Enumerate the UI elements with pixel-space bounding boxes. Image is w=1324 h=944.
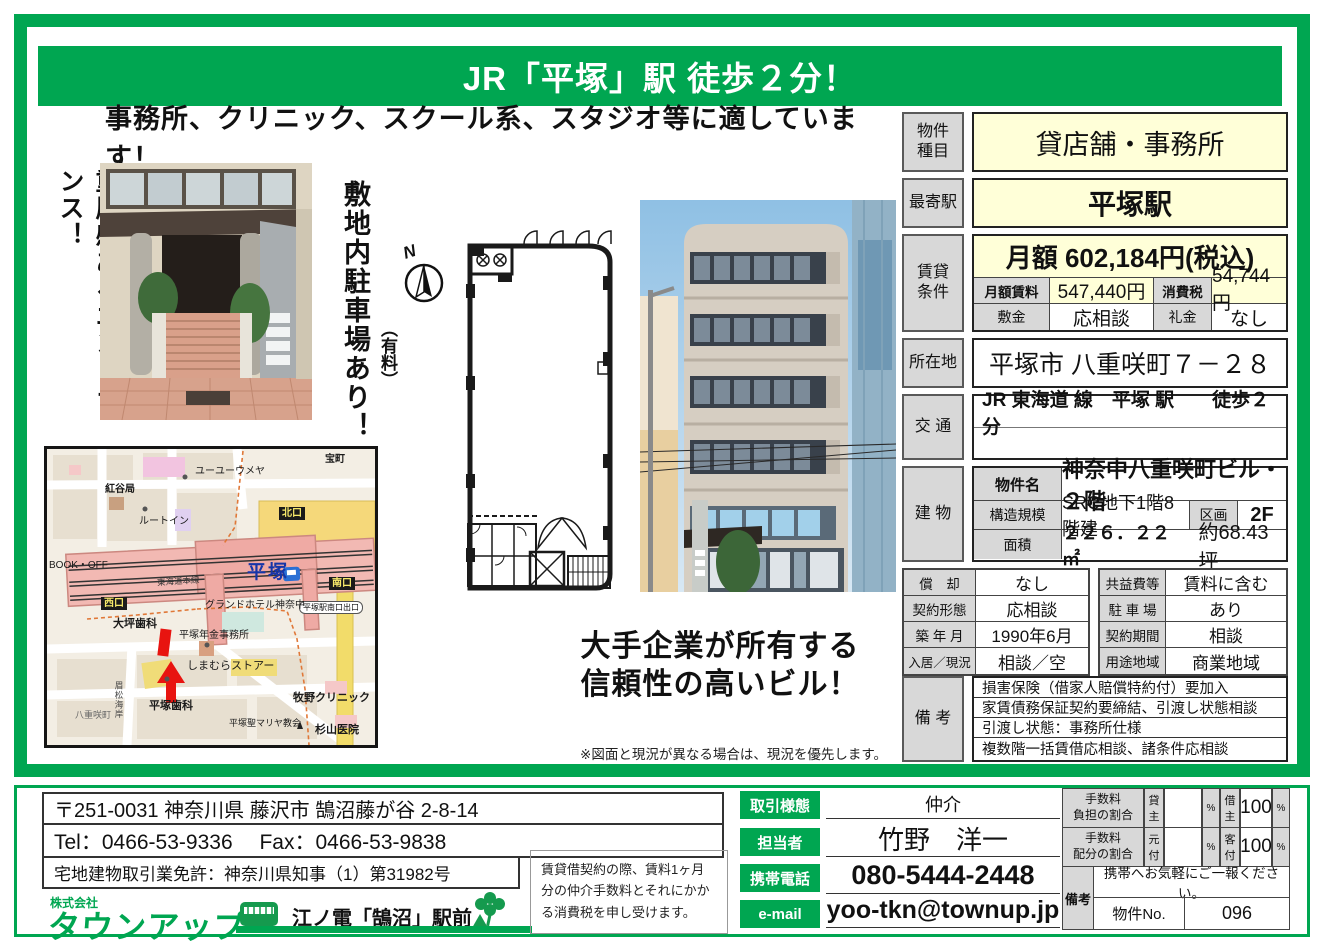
fee-tenant-value: 100 bbox=[1240, 788, 1272, 828]
detail-value: 1990年6月 bbox=[976, 622, 1088, 647]
logo-underline bbox=[236, 926, 532, 933]
area-row: 面積 ２２６．２２㎡ 約68.43坪 bbox=[974, 530, 1286, 559]
map-label-beniya: 紅谷局 bbox=[105, 485, 135, 495]
remark-line: 家賃債務保証契約要締結、引渡し状態相談 bbox=[974, 698, 1286, 718]
svg-text:N: N bbox=[401, 241, 419, 263]
parking-caption-note: （有料） bbox=[375, 320, 400, 470]
brokerage-fee-note: 賃貸借契約の際、賃料1ヶ月分の仲介手数料とそれにかかる消費税を申し受けます。 bbox=[530, 850, 728, 934]
detail-row: 共益費等 賃料に含む bbox=[1100, 570, 1286, 596]
value-tax: 54,744円 bbox=[1212, 278, 1286, 303]
page-title: JR「平塚」駅 徒歩２分！ bbox=[463, 52, 857, 100]
property-no-value: 096 bbox=[1184, 897, 1290, 930]
access-box: JR 東海道 線 平塚 駅 徒歩２分 bbox=[972, 394, 1288, 460]
value-property-type: 貸店舗・事務所 bbox=[972, 112, 1288, 172]
label-mobile: 携帯電話 bbox=[740, 864, 820, 892]
appeal-line2: 信頼性の高いビル！ bbox=[500, 666, 940, 704]
footer-remarks-right: 携帯へお気軽にご一報ください。 物件No. 096 bbox=[1094, 866, 1290, 930]
detail-value: なし bbox=[976, 570, 1088, 595]
fee-motozuke-label: 元付 bbox=[1144, 827, 1164, 867]
label-building-name: 物件名 bbox=[974, 468, 1062, 500]
map-label-youyou: ユーユーウメヤ bbox=[195, 467, 265, 477]
deposit-row: 敷金 応相談 礼金 なし bbox=[974, 304, 1286, 330]
map-label-yaesaki: 八重咲町 bbox=[75, 711, 111, 720]
label-deposit: 敷金 bbox=[974, 304, 1050, 330]
disclaimer-note: ※図面と現況が異なる場合は、現況を優先します。 bbox=[505, 743, 887, 763]
label-remarks: 備 考 bbox=[902, 676, 964, 762]
fee-kyakuzuke-label: 客付 bbox=[1220, 827, 1240, 867]
detail-row: 用途地域 商業地域 bbox=[1100, 648, 1286, 674]
company-address: 〒251-0031 神奈川県 藤沢市 鵠沼藤が谷 2-8-14 bbox=[42, 792, 724, 825]
detail-label: 共益費等 bbox=[1100, 570, 1166, 595]
value-nearest-station: 平塚駅 bbox=[972, 178, 1288, 228]
header-subtitle: 事務所、クリニック、スクール系、スタジオ等に適しています！ bbox=[105, 116, 905, 156]
map-label-station: 平塚 bbox=[247, 557, 289, 584]
value-address: 平塚市 八重咲町７－２８ bbox=[972, 338, 1288, 388]
entrance-photo bbox=[100, 163, 312, 420]
detail-row: 駐 車 場 あり bbox=[1100, 596, 1286, 622]
rent-conditions-box: 月額 602,184円(税込) 月額賃料 547,440円 消費税 54,744… bbox=[972, 234, 1288, 332]
detail-row: 償 却 なし bbox=[904, 570, 1088, 596]
value-area: ２２６．２２㎡ 約68.43坪 bbox=[1062, 530, 1286, 559]
value-mobile: 080-5444-2448 bbox=[826, 858, 1060, 894]
footer-remarks-text: 携帯へお気軽にご一報ください。 bbox=[1093, 866, 1290, 898]
detail-label: 築 年 月 bbox=[904, 622, 976, 647]
detail-value: 相談 bbox=[1166, 622, 1286, 647]
map-label-routeinn: ルートイン bbox=[139, 517, 189, 527]
parking-caption: 敷地内駐車場あり！ （有料） bbox=[336, 180, 400, 480]
remarks-box: 損害保険（借家人賠償特約付）要加入 家賃債務保証契約要締結、引渡し状態相談 引渡… bbox=[972, 676, 1288, 762]
label-key-money: 礼金 bbox=[1154, 304, 1212, 330]
detail-row: 築 年 月 1990年6月 bbox=[904, 622, 1088, 648]
fee-percent: % bbox=[1272, 827, 1290, 867]
flyer-page: JR「平塚」駅 徒歩２分！ 事務所、クリニック、スクール系、スタジオ等に適してい… bbox=[0, 0, 1324, 944]
details-table-left: 償 却 なし 契約形態 応相談 築 年 月 1990年6月 入居／現況 相談／空 bbox=[902, 568, 1090, 676]
map-label-nenkin: 平塚年金事務所 bbox=[179, 631, 249, 641]
value-email: yoo-tkn@townup.jp bbox=[826, 894, 1060, 928]
label-property-type: 物件 種目 bbox=[902, 112, 964, 172]
label-deal-type: 取引様態 bbox=[740, 791, 820, 819]
label-agent: 担当者 bbox=[740, 828, 820, 856]
map-label-hiratsuka-dental: 平塚歯科 bbox=[149, 701, 193, 712]
label-access: 交 通 bbox=[902, 394, 964, 460]
detail-row: 契約形態 応相談 bbox=[904, 596, 1088, 622]
detail-label: 入居／現況 bbox=[904, 648, 976, 674]
label-area: 面積 bbox=[974, 530, 1062, 559]
detail-value: 商業地域 bbox=[1166, 648, 1286, 674]
map-badge-south-exit: 南口 bbox=[329, 577, 355, 590]
location-map: 宝町 ユーユーウメヤ 紅谷局 ルートイン BOOK・OFF 北口 西口 南口 平… bbox=[44, 446, 378, 748]
fee-landlord-label: 貸主 bbox=[1144, 788, 1164, 828]
map-label-bookoff: BOOK・OFF bbox=[49, 561, 108, 571]
fee-kyakuzuke-value: 100 bbox=[1240, 827, 1272, 867]
map-badge-west-exit: 西口 bbox=[101, 597, 127, 610]
detail-value: あり bbox=[1166, 596, 1286, 621]
value-deal-type: 仲介 bbox=[826, 789, 1060, 819]
map-label-shimamura: しまむらストアー bbox=[187, 661, 274, 672]
fee-burden-label: 手数料 負担の割合 bbox=[1062, 788, 1144, 828]
building-box: 物件名 神奈中八重咲町ビル・２階 構造規模 SRC地下1階8階建 区画 2F 面… bbox=[972, 466, 1288, 562]
detail-value: 相談／空 bbox=[976, 648, 1088, 674]
remark-line: 損害保険（借家人賠償特約付）要加入 bbox=[974, 678, 1286, 698]
footer-remarks-block: 備考 携帯へお気軽にご一報ください。 物件No. 096 bbox=[1062, 866, 1290, 930]
fee-split-label: 手数料 配分の割合 bbox=[1062, 827, 1144, 867]
detail-label: 用途地域 bbox=[1100, 648, 1166, 674]
value-key-money: なし bbox=[1212, 304, 1286, 330]
remark-line: 引渡し状態：事務所仕様 bbox=[974, 718, 1286, 738]
label-rent-conditions: 賃貸 条件 bbox=[902, 234, 964, 332]
fee-table: 手数料 負担の割合 貸主 % 借主 100 % 手数料 配分の割合 元付 % 客… bbox=[1062, 788, 1290, 930]
detail-row: 契約期間 相談 bbox=[1100, 622, 1286, 648]
label-email: e-mail bbox=[740, 900, 820, 928]
value-agent: 竹野 洋一 bbox=[826, 821, 1060, 857]
detail-label: 契約形態 bbox=[904, 596, 976, 621]
value-monthly-rent: 547,440円 bbox=[1050, 278, 1154, 303]
details-table-right: 共益費等 賃料に含む 駐 車 場 あり 契約期間 相談 用途地域 商業地域 bbox=[1098, 568, 1288, 676]
company-license: 宅地建物取引業免許：神奈川県知事（1）第31982号 bbox=[42, 856, 520, 889]
fee-percent: % bbox=[1272, 788, 1290, 828]
appeal-text: 大手企業が所有する 信頼性の高いビル！ bbox=[500, 628, 940, 703]
fee-tenant-label: 借主 bbox=[1220, 788, 1240, 828]
map-label-grand-hotel: グランドホテル神奈中 bbox=[205, 601, 305, 611]
label-structure: 構造規模 bbox=[974, 501, 1062, 529]
detail-value: 賃料に含む bbox=[1166, 570, 1286, 595]
map-sign-south-exit: 平塚駅南口出口 bbox=[299, 601, 363, 614]
value-deposit: 応相談 bbox=[1050, 304, 1154, 330]
property-no-label: 物件No. bbox=[1093, 897, 1185, 930]
building-photo bbox=[640, 200, 896, 592]
value-area-tsubo: 約68.43坪 bbox=[1198, 516, 1286, 574]
detail-label: 償 却 bbox=[904, 570, 976, 595]
fee-motozuke-value bbox=[1164, 827, 1202, 867]
value-access: JR 東海道 線 平塚 駅 徒歩２分 bbox=[974, 396, 1286, 428]
detail-label: 駐 車 場 bbox=[1100, 596, 1166, 621]
fee-percent: % bbox=[1202, 827, 1220, 867]
fee-percent: % bbox=[1202, 788, 1220, 828]
label-monthly-rent: 月額賃料 bbox=[974, 278, 1050, 303]
value-area-m2: ２２６．２２㎡ bbox=[1062, 519, 1184, 571]
fee-split-row: 手数料 配分の割合 元付 % 客付 100 % bbox=[1062, 827, 1290, 867]
map-label-maria: 平塚聖マリヤ教会 bbox=[229, 719, 301, 728]
map-label-takaracho: 宝町 bbox=[325, 455, 345, 465]
detail-label: 契約期間 bbox=[1100, 622, 1166, 647]
map-badge-north-exit: 北口 bbox=[279, 507, 305, 520]
fee-burden-row: 手数料 負担の割合 貸主 % 借主 100 % bbox=[1062, 788, 1290, 828]
parking-caption-main: 敷地内駐車場あり！ bbox=[336, 180, 375, 470]
map-label-otsubo: 大坪歯科 bbox=[113, 619, 157, 630]
remark-line: 複数階一括賃借応相談、諸条件応相談 bbox=[974, 738, 1286, 759]
footer-remarks-label: 備考 bbox=[1062, 866, 1094, 930]
fee-landlord-value bbox=[1164, 788, 1202, 828]
appeal-line1: 大手企業が所有する bbox=[500, 628, 940, 666]
label-address: 所在地 bbox=[902, 338, 964, 388]
map-label-sugiyama: 杉山医院 bbox=[315, 725, 359, 736]
company-logo: タウンアップ bbox=[46, 902, 247, 944]
map-label-coast-road: 眉松海岸 bbox=[113, 681, 125, 719]
property-no-row: 物件No. 096 bbox=[1094, 897, 1290, 930]
rent-row: 月額賃料 547,440円 消費税 54,744円 bbox=[974, 278, 1286, 304]
label-nearest-station: 最寄駅 bbox=[902, 178, 964, 228]
detail-row: 入居／現況 相談／空 bbox=[904, 648, 1088, 674]
label-tax: 消費税 bbox=[1154, 278, 1212, 303]
label-building: 建 物 bbox=[902, 466, 964, 562]
map-label-makino: 牧野クリニック bbox=[293, 693, 370, 704]
floor-plan bbox=[438, 226, 640, 614]
detail-value: 応相談 bbox=[976, 596, 1088, 621]
